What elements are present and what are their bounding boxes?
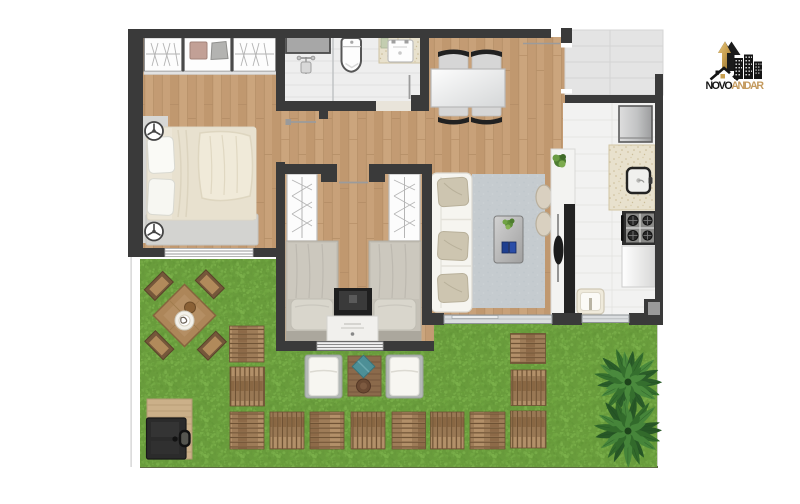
svg-text:NOVOANDAR: NOVOANDAR (706, 80, 765, 92)
